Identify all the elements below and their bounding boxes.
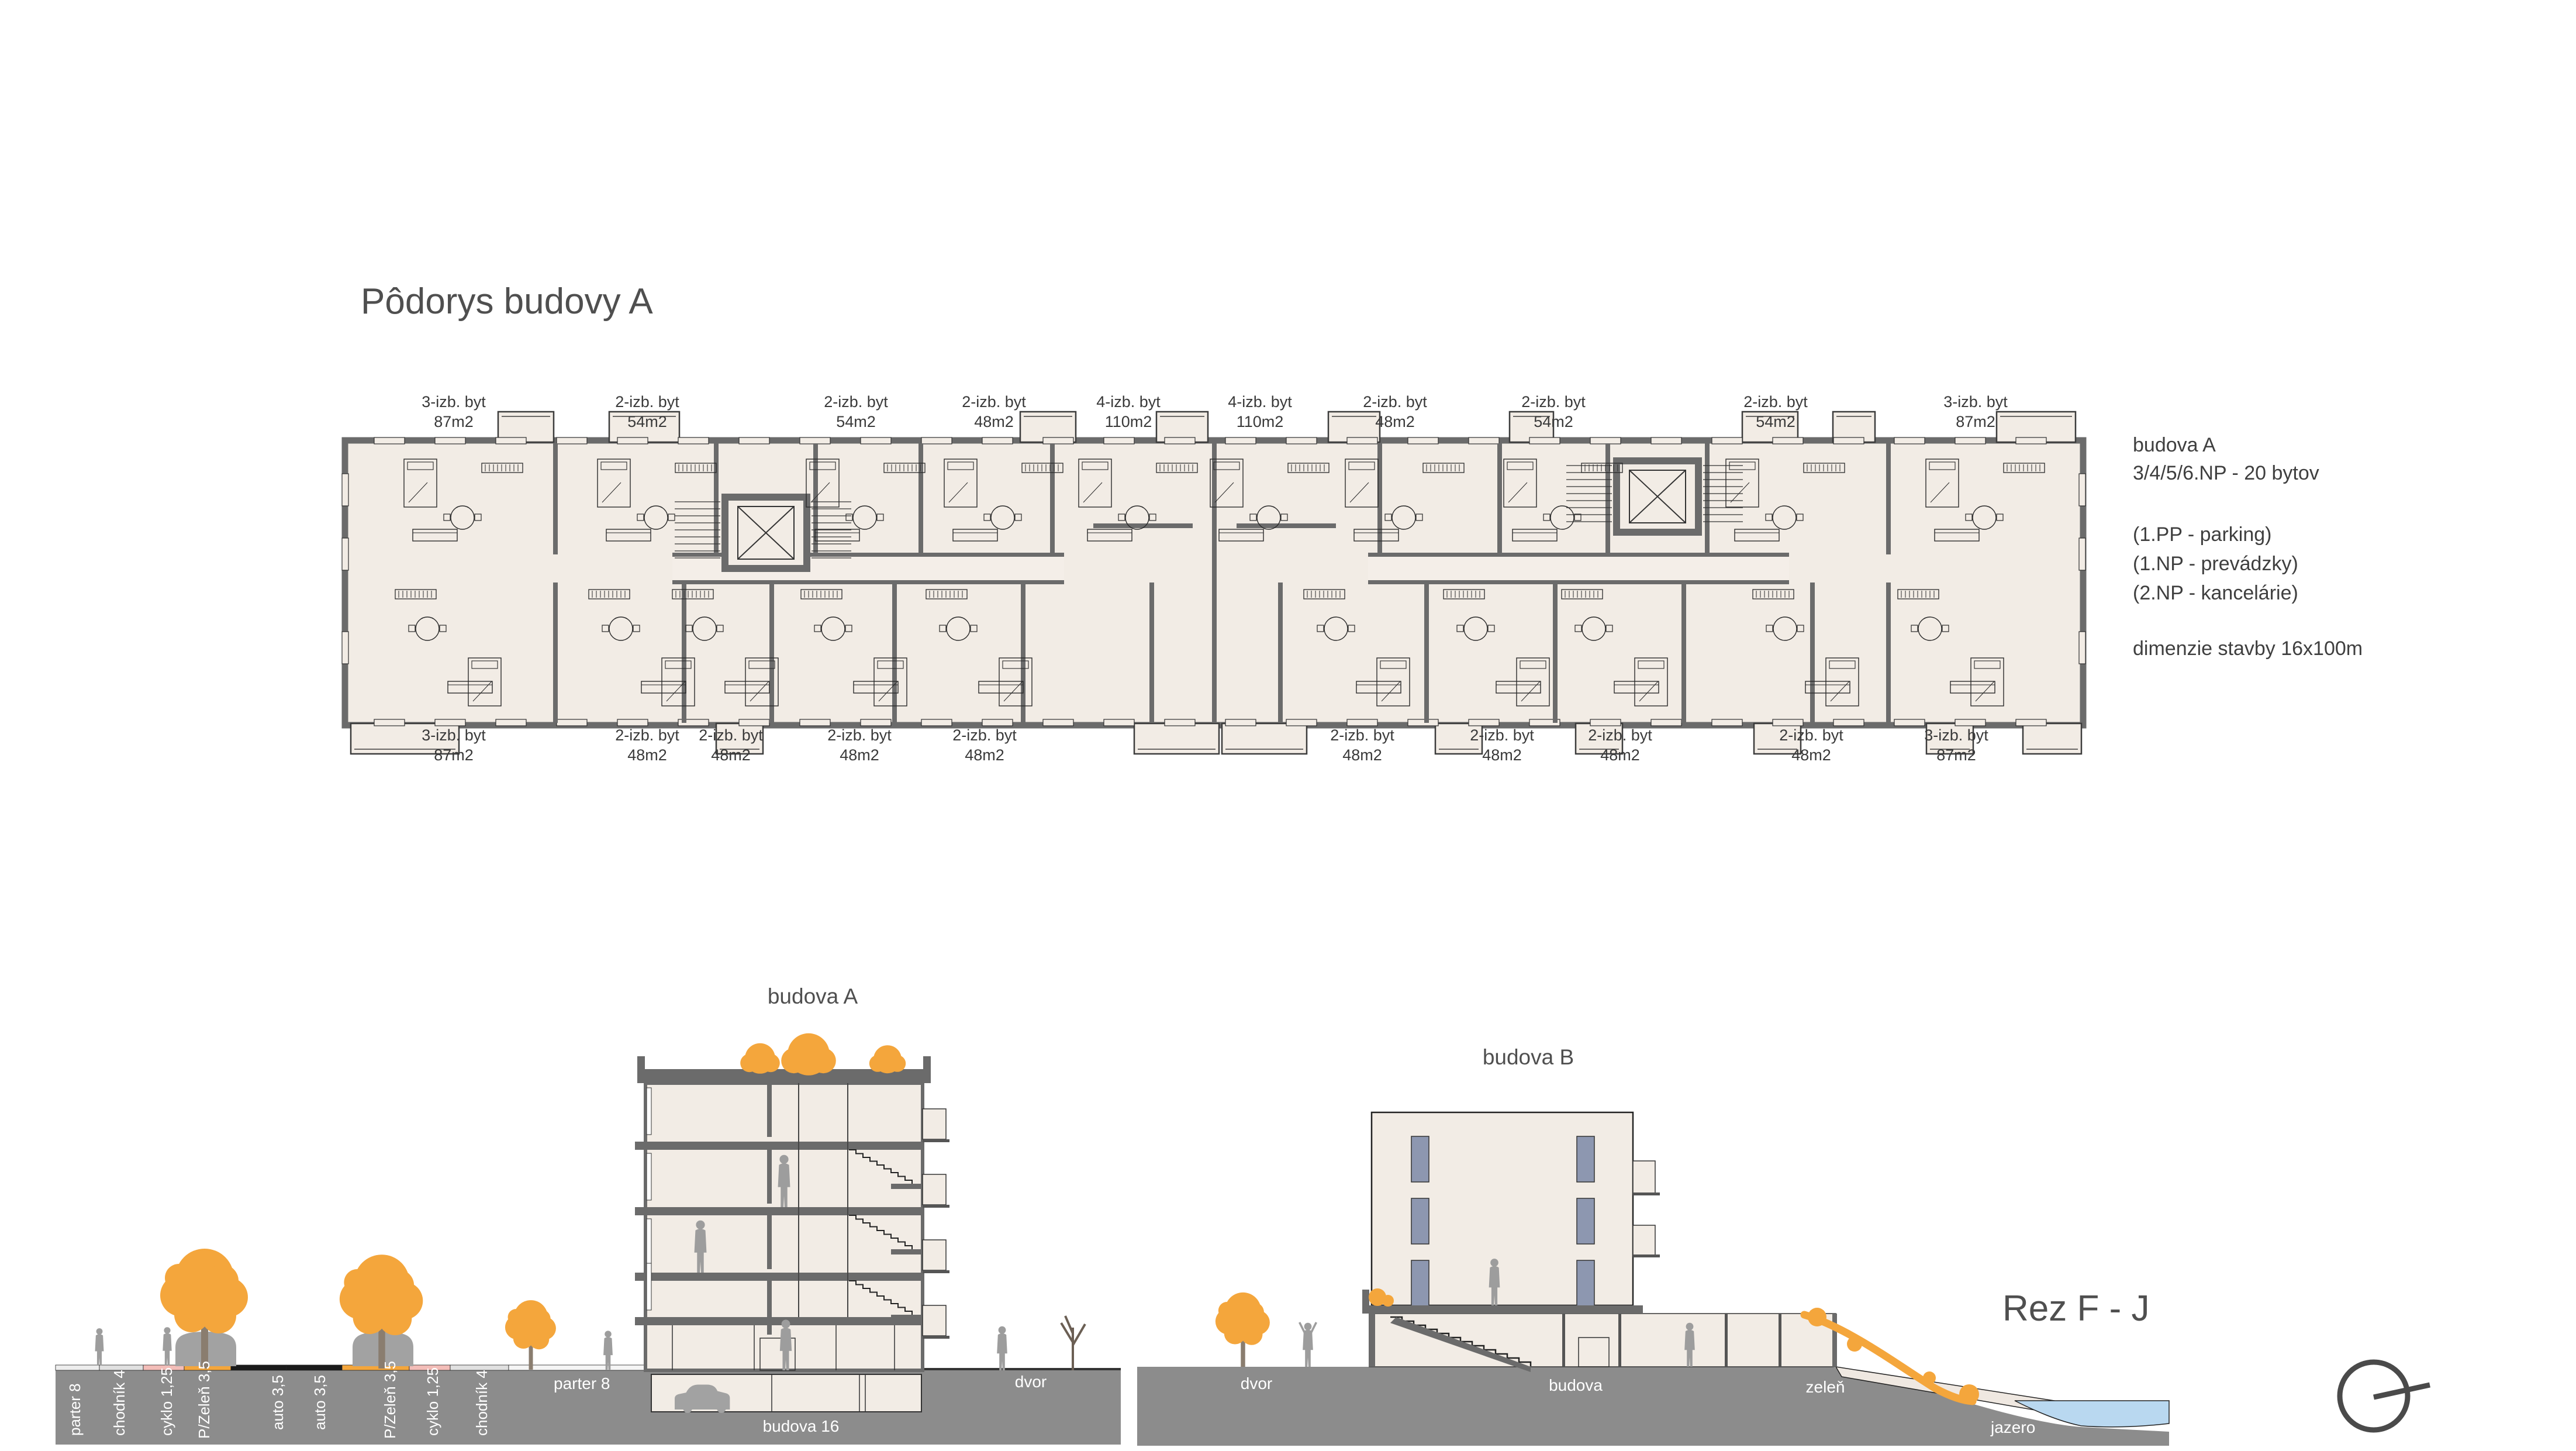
zelen-label: zeleň: [1806, 1378, 1845, 1396]
section-budova-a: [635, 1033, 949, 1413]
street-label: chodník 4: [111, 1370, 128, 1436]
unit-label: 2-izb. byt: [962, 393, 1026, 411]
floor-plan: [342, 412, 2085, 754]
unit-area: 48m2: [627, 746, 667, 764]
street-label: chodník 4: [473, 1370, 491, 1436]
unit-area: 48m2: [840, 746, 879, 764]
unit-area: 48m2: [1375, 413, 1415, 430]
unit-area: 54m2: [836, 413, 876, 430]
page-title: Pôdorys budovy A: [361, 281, 653, 322]
person-silhouette: [1299, 1322, 1317, 1367]
unit-label: 2-izb. byt: [1330, 726, 1394, 744]
unit-area: 48m2: [1600, 746, 1640, 764]
street-label: auto 3,5: [311, 1375, 329, 1430]
note-prevadzky: (1.NP - prevádzky): [2133, 553, 2298, 575]
unit-label: 2-izb. byt: [699, 726, 763, 744]
note-parking: (1.PP - parking): [2133, 523, 2271, 546]
section-drawing: [56, 1033, 2169, 1446]
unit-area: 48m2: [1342, 746, 1382, 764]
street-label: P/Zeleň 3,5: [195, 1361, 213, 1439]
note-kancelarie: (2.NP - kancelárie): [2133, 582, 2298, 604]
unit-area: 48m2: [1482, 746, 1522, 764]
section-title: Rez F - J: [2002, 1288, 2149, 1329]
tree: [505, 1300, 556, 1370]
unit-label: 2-izb. byt: [1470, 726, 1534, 744]
unit-label: 2-izb. byt: [1363, 393, 1427, 411]
unit-label: 2-izb. byt: [1743, 393, 1808, 411]
garage-label: budova 16: [763, 1417, 840, 1435]
note-floors: 3/4/5/6.NP - 20 bytov: [2133, 462, 2319, 484]
person-silhouette: [95, 1328, 104, 1366]
unit-area: 87m2: [434, 413, 474, 430]
unit-label: 4-izb. byt: [1096, 393, 1161, 411]
roof-bushes: [740, 1033, 906, 1076]
street-label: cyklo 1,25: [158, 1367, 175, 1436]
unit-label: 2-izb. byt: [1521, 393, 1586, 411]
budova-label: budova: [1549, 1376, 1603, 1394]
unit-label: 2-izb. byt: [615, 393, 679, 411]
unit-label: 2-izb. byt: [952, 726, 1017, 744]
unit-label: 3-izb. byt: [1924, 726, 1988, 744]
unit-label: 3-izb. byt: [422, 393, 486, 411]
note-building: budova A: [2133, 434, 2216, 456]
parter-label: parter 8: [554, 1374, 610, 1393]
dvor-b-label: dvor: [1241, 1374, 1272, 1393]
street-label: cyklo 1,25: [424, 1367, 441, 1436]
tree: [1216, 1293, 1270, 1367]
unit-label: 2-izb. byt: [1588, 726, 1652, 744]
section-b-label: budova B: [1483, 1045, 1574, 1069]
unit-area: 110m2: [1105, 413, 1152, 430]
unit-area: 54m2: [1534, 413, 1573, 430]
unit-label: 3-izb. byt: [1943, 393, 2008, 411]
unit-area: 87m2: [1956, 413, 1995, 430]
section-a-label: budova A: [768, 984, 858, 1008]
unit-area: 48m2: [974, 413, 1014, 430]
unit-area: 48m2: [965, 746, 1004, 764]
note-dimensions: dimenzie stavby 16x100m: [2133, 637, 2363, 660]
person-silhouette: [163, 1327, 171, 1366]
street-label: parter 8: [66, 1383, 84, 1436]
unit-label: 2-izb. byt: [824, 393, 888, 411]
architectural-sheet: Pôdorys budovy A budova A budova B Rez F…: [0, 0, 2576, 1451]
unit-label: 2-izb. byt: [827, 726, 892, 744]
unit-label: 3-izb. byt: [422, 726, 486, 744]
north-compass-icon: [2340, 1362, 2430, 1430]
unit-area: 110m2: [1237, 413, 1284, 430]
unit-area: 48m2: [711, 746, 751, 764]
drawing-canvas: Pôdorys budovy A budova A budova B Rez F…: [0, 0, 2576, 1451]
unit-area: 54m2: [1756, 413, 1795, 430]
dvor-a-label: dvor: [1015, 1373, 1047, 1391]
section-budova-b: [1362, 1112, 1979, 1404]
unit-area: 87m2: [1936, 746, 1976, 764]
unit-area: 54m2: [627, 413, 667, 430]
street-label: P/Zeleň 3,5: [381, 1361, 399, 1439]
unit-label: 2-izb. byt: [1779, 726, 1843, 744]
unit-label: 2-izb. byt: [615, 726, 679, 744]
unit-area: 48m2: [1791, 746, 1831, 764]
plan-notes: budova A 3/4/5/6.NP - 20 bytov (1.PP - p…: [2133, 434, 2363, 660]
sapling-tree: [1061, 1316, 1085, 1370]
person-silhouette: [997, 1326, 1007, 1370]
unit-label: 4-izb. byt: [1228, 393, 1292, 411]
street-label: auto 3,5: [269, 1375, 286, 1430]
person-silhouette: [603, 1331, 613, 1370]
jazero-label: jazero: [1990, 1418, 2035, 1436]
unit-area: 87m2: [434, 746, 474, 764]
